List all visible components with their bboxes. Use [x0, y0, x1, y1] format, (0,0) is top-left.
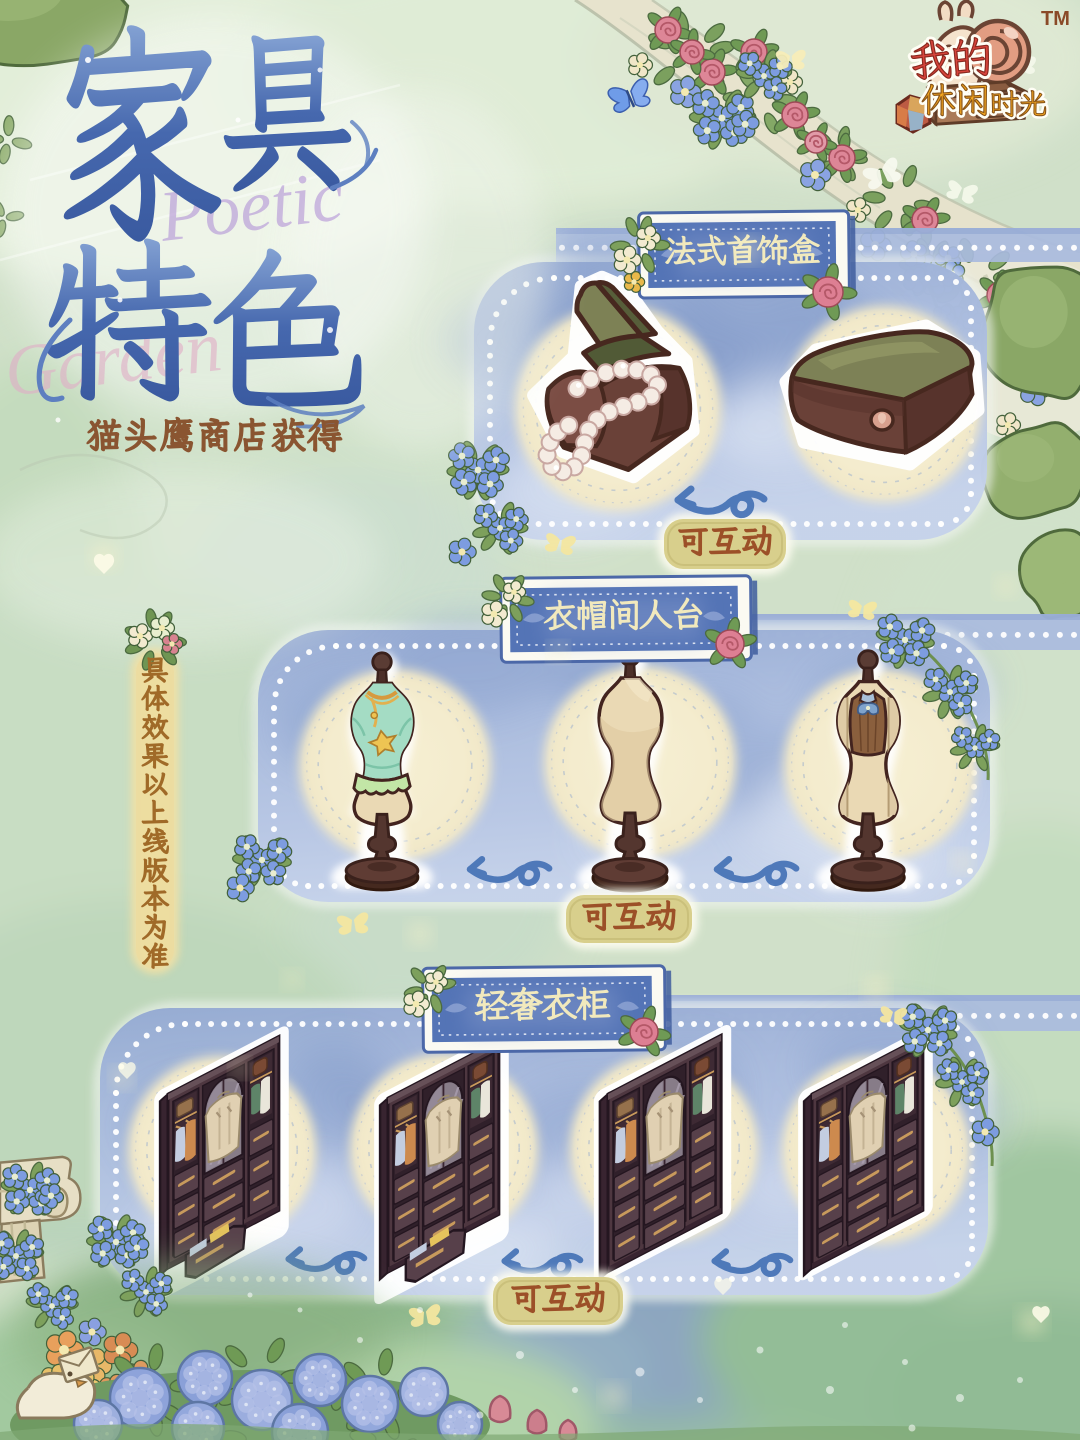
svg-text:TM: TM — [1041, 8, 1070, 30]
